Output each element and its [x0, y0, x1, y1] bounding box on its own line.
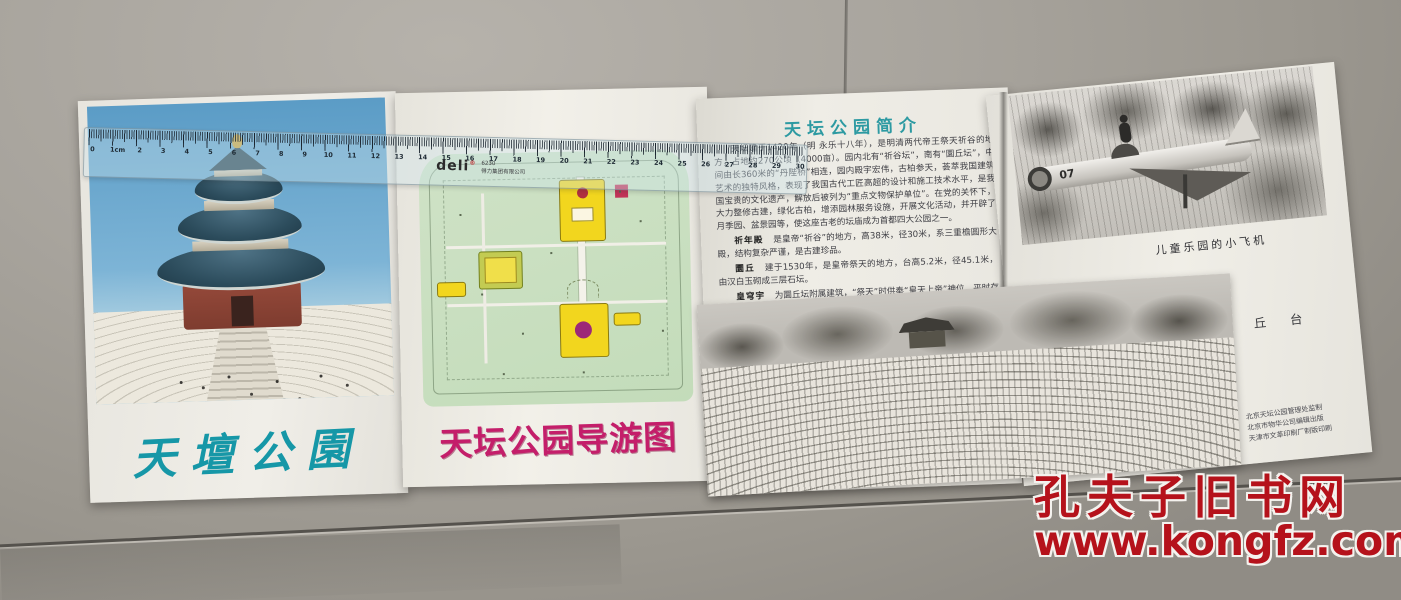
temple-door: [231, 296, 254, 327]
map-qiniandian-gate: [571, 207, 593, 221]
cover-title: 天壇公園: [87, 410, 408, 489]
ruler-number: 9: [299, 150, 311, 158]
ruler-number: 20: [558, 157, 570, 165]
map-block-zhaigong: [484, 257, 517, 284]
airplane-number: 07: [1058, 167, 1075, 182]
ruler-number: 25: [676, 159, 688, 167]
map-block-east-annex: [614, 312, 641, 326]
panel-fold-gap: [999, 92, 1008, 292]
ruler-number: 2: [134, 146, 146, 154]
ruler-number: 7: [251, 149, 263, 157]
ruler-number: 30: [794, 162, 806, 170]
map-label-specks: [459, 214, 461, 216]
photo-scene: 天壇公園 天坛公园导游图 天坛公园简介 天坛建于1420年（明: [0, 0, 1401, 600]
registered-mark: ®: [469, 160, 476, 167]
intro-paragraph-head: 圜丘: [735, 263, 765, 274]
watermark-site-name: 孔夫子旧书网: [1034, 474, 1401, 521]
map-title: 天坛公园导游图: [401, 409, 714, 467]
publisher-block: 北京天坛公园管理处监制北京市物华公司编辑出版天津市文革印刷厂制版印刷: [1245, 396, 1368, 445]
intro-paragraph-head: 祈年殿: [734, 235, 773, 246]
ruler-brand-block: deli® 6230 得力集团有限公司: [436, 159, 526, 178]
ruler-number: 23: [629, 158, 641, 166]
ruler-number: 27: [723, 161, 735, 169]
ruler-number: 6: [228, 149, 240, 157]
playground-airplane-photo: 07: [1008, 66, 1327, 245]
ruler-company: 得力集团有限公司: [481, 168, 525, 177]
ruler-number: 10: [322, 151, 334, 159]
ruler-number: 19: [535, 156, 547, 164]
ruler-number: 0: [86, 145, 98, 153]
map-huangqiongyu-circle: [567, 279, 599, 299]
ruler-number: 14: [417, 153, 429, 161]
ruler-number: 29: [770, 162, 782, 170]
watermark-site-url: www.kongfz.com: [1034, 521, 1401, 563]
gate-pavilion: [909, 330, 946, 348]
ruler-number: 12: [369, 152, 381, 160]
ruler-number: 8: [275, 150, 287, 158]
floor-shading: [0, 524, 622, 600]
ruler-number: 28: [747, 161, 759, 169]
ruler-number: 21: [582, 157, 594, 165]
ruler-number: 24: [652, 159, 664, 167]
ruler-number: 11: [346, 151, 358, 159]
ruler-number: 22: [605, 158, 617, 166]
ruler-number: 5: [204, 148, 216, 156]
ruler-number: 26: [700, 160, 712, 168]
ruler-number: 4: [181, 147, 193, 155]
deli-logo: deli®: [436, 159, 476, 174]
map-inner-wall: [443, 176, 669, 381]
visitor-figures: [180, 381, 183, 384]
circular-mound-altar-photo: [697, 273, 1241, 496]
kongfz-watermark: 孔夫子旧书网 www.kongfz.com: [1034, 474, 1401, 563]
ruler-number: 13: [393, 153, 405, 161]
altar-photo-caption: 圜 丘 台: [1216, 304, 1347, 336]
map-block-west-gate: [437, 282, 466, 298]
ruler-number: 1cm: [110, 146, 122, 154]
airplane-support-strut: [1183, 174, 1187, 208]
ruler-number: 3: [157, 147, 169, 155]
